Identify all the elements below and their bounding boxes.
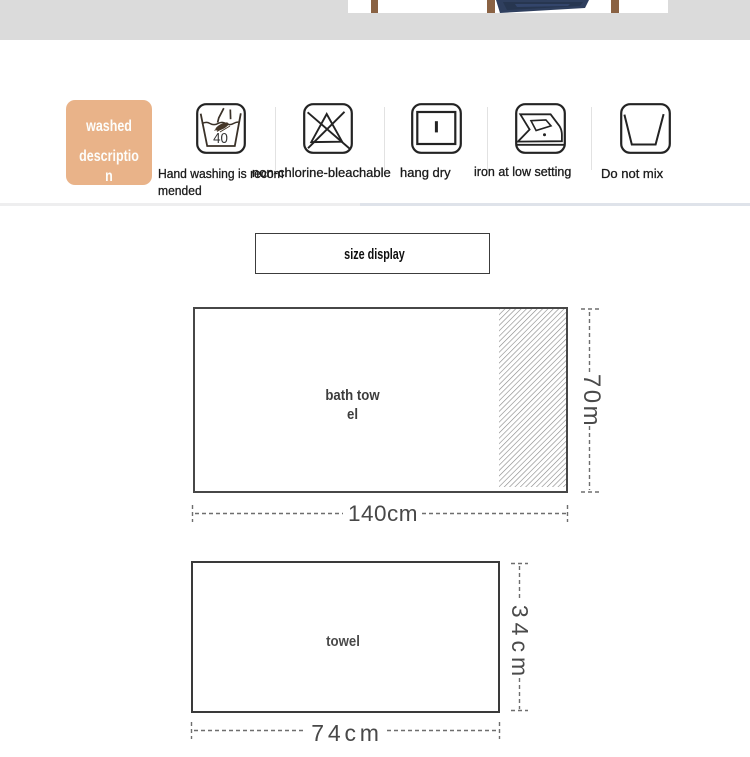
svg-text:40: 40 xyxy=(213,131,228,147)
